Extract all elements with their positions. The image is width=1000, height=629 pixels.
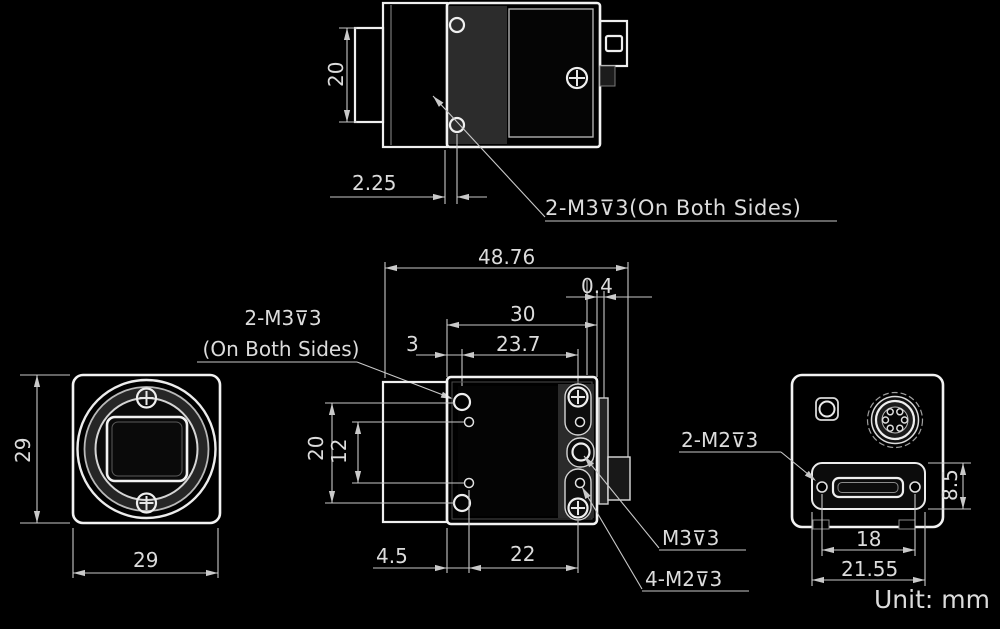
arrowhead	[447, 322, 459, 328]
arrowhead	[616, 265, 628, 271]
arrowhead	[385, 265, 397, 271]
arrowhead	[812, 577, 824, 583]
arrowhead	[462, 352, 474, 358]
connector-slot	[606, 36, 622, 51]
m2x4-note-label: 4-M2⊽3	[645, 567, 722, 591]
dimension-drawing: 20 2.25 2-M3⊽3(On Both Sides) 48.76 0.4	[0, 0, 1000, 629]
dim-label-rear-gap: 0.4	[581, 274, 613, 298]
note-rear-m2: 2-M2⊽3	[679, 428, 818, 483]
bottom-tab	[813, 520, 829, 529]
crosshead-screw	[569, 388, 588, 407]
dim-label-front-height: 29	[11, 438, 35, 463]
dim-rear-gap: 0.4	[566, 274, 652, 398]
rear-m2-note-label: 2-M2⊽3	[681, 428, 758, 452]
arrowhead	[457, 194, 469, 200]
m2-hole	[576, 418, 585, 427]
arrowhead	[329, 403, 335, 415]
pin	[897, 409, 903, 415]
m2-hole	[817, 482, 827, 492]
dim-label-m2-vertical: 12	[327, 439, 351, 464]
arrowhead	[344, 28, 350, 40]
dim-flange-offset: 2.25	[330, 134, 487, 204]
pin	[902, 417, 908, 423]
crosshead-screw	[137, 494, 156, 513]
pin	[897, 425, 903, 431]
dim-label-front-width: 29	[133, 548, 158, 572]
arrowhead	[433, 194, 445, 200]
crosshead-screw	[569, 499, 588, 518]
lens-flange-outline	[355, 28, 383, 122]
arrowhead	[344, 110, 350, 122]
rear-view	[792, 375, 943, 529]
side-view	[383, 377, 630, 524]
dim-front-width: 29	[73, 528, 218, 578]
body-top-panel	[509, 9, 593, 137]
led-indicator	[820, 402, 835, 417]
dim-front-height: 29	[11, 375, 70, 523]
pin	[887, 425, 893, 431]
side-note-line2: (On Both Sides)	[203, 337, 360, 361]
arrowhead	[903, 547, 915, 553]
arrowhead	[566, 565, 578, 571]
arrowhead	[566, 352, 578, 358]
arrowhead	[34, 375, 40, 387]
dim-label-m2-span: 22	[510, 542, 535, 566]
io-band	[812, 463, 925, 509]
dim-label-rear-hole-span: 18	[856, 527, 881, 551]
arrowhead	[822, 547, 834, 553]
pin	[883, 417, 889, 423]
arrowhead	[329, 491, 335, 503]
m2-hole	[465, 418, 474, 427]
arrowhead	[355, 422, 361, 434]
drawing-canvas: 20 2.25 2-M3⊽3(On Both Sides) 48.76 0.4	[0, 0, 1000, 629]
dim-label-m3-offset: 3	[406, 332, 419, 356]
rear-step	[600, 66, 615, 86]
arrowhead	[435, 352, 447, 358]
m2-hole	[910, 482, 920, 492]
dim-label-m3-vertical: 20	[304, 436, 328, 461]
arrowhead	[469, 565, 481, 571]
crosshead-screw	[137, 389, 156, 408]
arrowhead	[206, 570, 218, 576]
rear-plate	[599, 398, 608, 504]
crosshead-screw	[567, 68, 587, 88]
unit-label: Unit: mm	[874, 585, 990, 614]
arrowhead	[585, 322, 597, 328]
dim-label-band-height: 8.5	[938, 469, 962, 501]
body-side-panel	[458, 386, 558, 516]
lens-barrel-outline	[383, 3, 447, 147]
dim-label-total-length: 48.76	[478, 245, 535, 269]
m3-note-label: M3⊽3	[662, 526, 719, 550]
dim-label-flange-offset: 2.25	[352, 171, 397, 195]
dim-label-m3-span: 23.7	[496, 332, 541, 356]
rear-protrusion	[608, 457, 630, 500]
arrowhead	[435, 565, 447, 571]
dim-label-band-width: 21.55	[841, 557, 898, 581]
m2-hole	[576, 479, 585, 488]
bottom-tab	[899, 520, 915, 529]
dim-top-width: 20	[324, 28, 357, 122]
dim-label-body-depth: 30	[510, 302, 535, 326]
dim-m2-vertical: 12	[327, 422, 464, 483]
m2-hole	[465, 479, 474, 488]
top-view	[355, 3, 627, 147]
top-note-label: 2-M3⊽3(On Both Sides)	[545, 196, 801, 220]
arrowhead	[34, 511, 40, 523]
pin	[887, 409, 893, 415]
dim-label-top-width: 20	[324, 62, 348, 87]
arrowhead	[913, 577, 925, 583]
dim-hole-offsets: 3 23.7	[406, 332, 578, 394]
side-note-line1: 2-M3⊽3	[244, 306, 321, 330]
dim-band-height: 8.5	[928, 463, 971, 509]
arrowhead	[73, 570, 85, 576]
dim-label-m2-offset: 4.5	[376, 544, 408, 568]
front-view	[73, 375, 220, 523]
arrowhead	[355, 471, 361, 483]
